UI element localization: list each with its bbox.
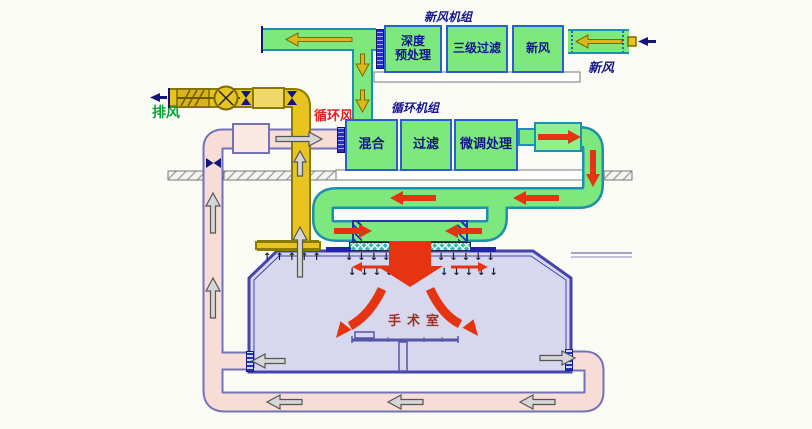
supply-silencer — [534, 122, 582, 152]
operating-table — [352, 332, 458, 371]
deep-pretreatment-line2: 预处理 — [395, 48, 431, 62]
duct-end-ticks — [169, 26, 262, 108]
fresh-air-unit-left-flange — [376, 29, 384, 69]
three-stage-filter-box: 三级过滤 — [446, 25, 508, 73]
supply-airflow-ticks-row2-left: ↓↓↓↓ — [348, 267, 398, 278]
deep-pretreatment-box: 深度 预处理 — [384, 25, 442, 73]
supply-plenum — [352, 220, 468, 243]
exhaust-fan-icon — [177, 87, 240, 110]
fine-tune-box: 微调处理 — [454, 119, 518, 171]
exhaust-silencer — [252, 87, 285, 109]
deep-pretreatment-line1: 深度 — [401, 34, 425, 48]
mixing-box-inlet-flange — [337, 127, 345, 153]
supply-airflow-ticks-row1-right: ↓↓↓↓↓ — [437, 252, 499, 263]
filter-box: 过滤 — [400, 119, 452, 171]
exhaust-hood — [255, 241, 321, 250]
plenum-right-flange — [458, 222, 466, 241]
supply-airflow-ticks-row1-left: ↓↓↓↓ — [345, 252, 395, 263]
return-duct — [213, 139, 594, 402]
exhaust-outlet-arrow — [150, 93, 167, 102]
right-return-grille — [565, 349, 573, 371]
fresh-air-unit-label: 新风机组 — [424, 8, 472, 25]
left-return-grille — [246, 351, 254, 372]
hepa-filter-strip — [349, 242, 471, 251]
exhaust-suction-ticks: ↑↑↑↑↑ — [263, 252, 325, 263]
fresh-air-box: 新风 — [512, 25, 564, 73]
fresh-air-inlet-stub — [628, 37, 656, 46]
fresh-air-inlet-label: 新风 — [588, 57, 614, 76]
operating-room-label: 手术室 — [388, 310, 445, 329]
hvac-diagram: 新风机组 深度 预处理 三级过滤 新风 新风 排风 循环风 循环机组 混合 过滤… — [0, 0, 812, 429]
plenum-left-flange — [354, 222, 362, 241]
supply-airflow-ticks-row2-right: ↓↓↓↓↓ — [440, 267, 502, 278]
exhaust-label: 排风 — [152, 102, 180, 122]
circulation-unit-label: 循环机组 — [391, 99, 439, 116]
mixing-box: 混合 — [345, 119, 398, 171]
return-silencer — [232, 123, 270, 154]
exhaust-duct — [170, 98, 319, 246]
